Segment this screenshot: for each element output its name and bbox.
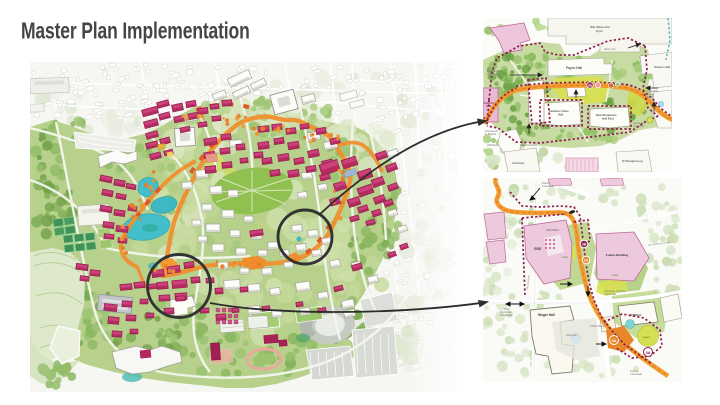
svg-text:New Festblain: New Festblain [520, 143, 537, 147]
svg-text:Hall East: Hall East [602, 117, 614, 121]
svg-text:3A: 3A [645, 350, 650, 355]
svg-text:Hall: Hall [558, 113, 563, 117]
svg-text:Steger Hall: Steger Hall [538, 313, 555, 317]
svg-text:Deatrix: Deatrix [645, 95, 654, 99]
svg-text:Master Plan Implementation: Master Plan Implementation [21, 18, 250, 44]
svg-text:2B: 2B [582, 243, 587, 247]
svg-text:2a: 2a [588, 83, 592, 87]
svg-text:Venstean: Venstean [512, 161, 525, 165]
svg-text:Crosswalk: Crosswalk [630, 372, 643, 376]
svg-text:Crosswalk: Crosswalk [542, 184, 555, 188]
svg-text:Crosswalk: Crosswalk [604, 292, 617, 296]
svg-text:Lawn: Lawn [562, 255, 569, 259]
svg-text:Payne Hall: Payne Hall [566, 66, 582, 70]
svg-text:to query: to query [487, 75, 497, 79]
svg-text:2A: 2A [584, 259, 589, 263]
svg-text:GSS: GSS [534, 247, 542, 251]
svg-text:Sliteroute: Sliteroute [566, 333, 578, 337]
svg-text:to Bednar: to Bednar [485, 132, 496, 136]
svg-text:Wholesale: Wholesale [500, 313, 513, 317]
svg-text:Affeldema: Affeldema [487, 143, 499, 147]
svg-text:Lawn: Lawn [643, 335, 650, 339]
svg-text:O'Shaughnessy: O'Shaughnessy [622, 159, 643, 163]
svg-text:GSS Plaza: GSS Plaza [546, 228, 559, 232]
svg-text:Owens Hall: Owens Hall [654, 65, 670, 69]
svg-text:Horyantle: Horyantle [633, 124, 645, 128]
svg-text:Future Building: Future Building [606, 253, 628, 257]
svg-text:Gym: Gym [596, 29, 603, 33]
svg-text:Shep Link: Shep Link [604, 47, 616, 51]
svg-text:3A: 3A [611, 338, 616, 343]
svg-text:KTMA Plaza: KTMA Plaza [590, 324, 605, 328]
svg-text:Lawn: Lawn [612, 273, 619, 277]
